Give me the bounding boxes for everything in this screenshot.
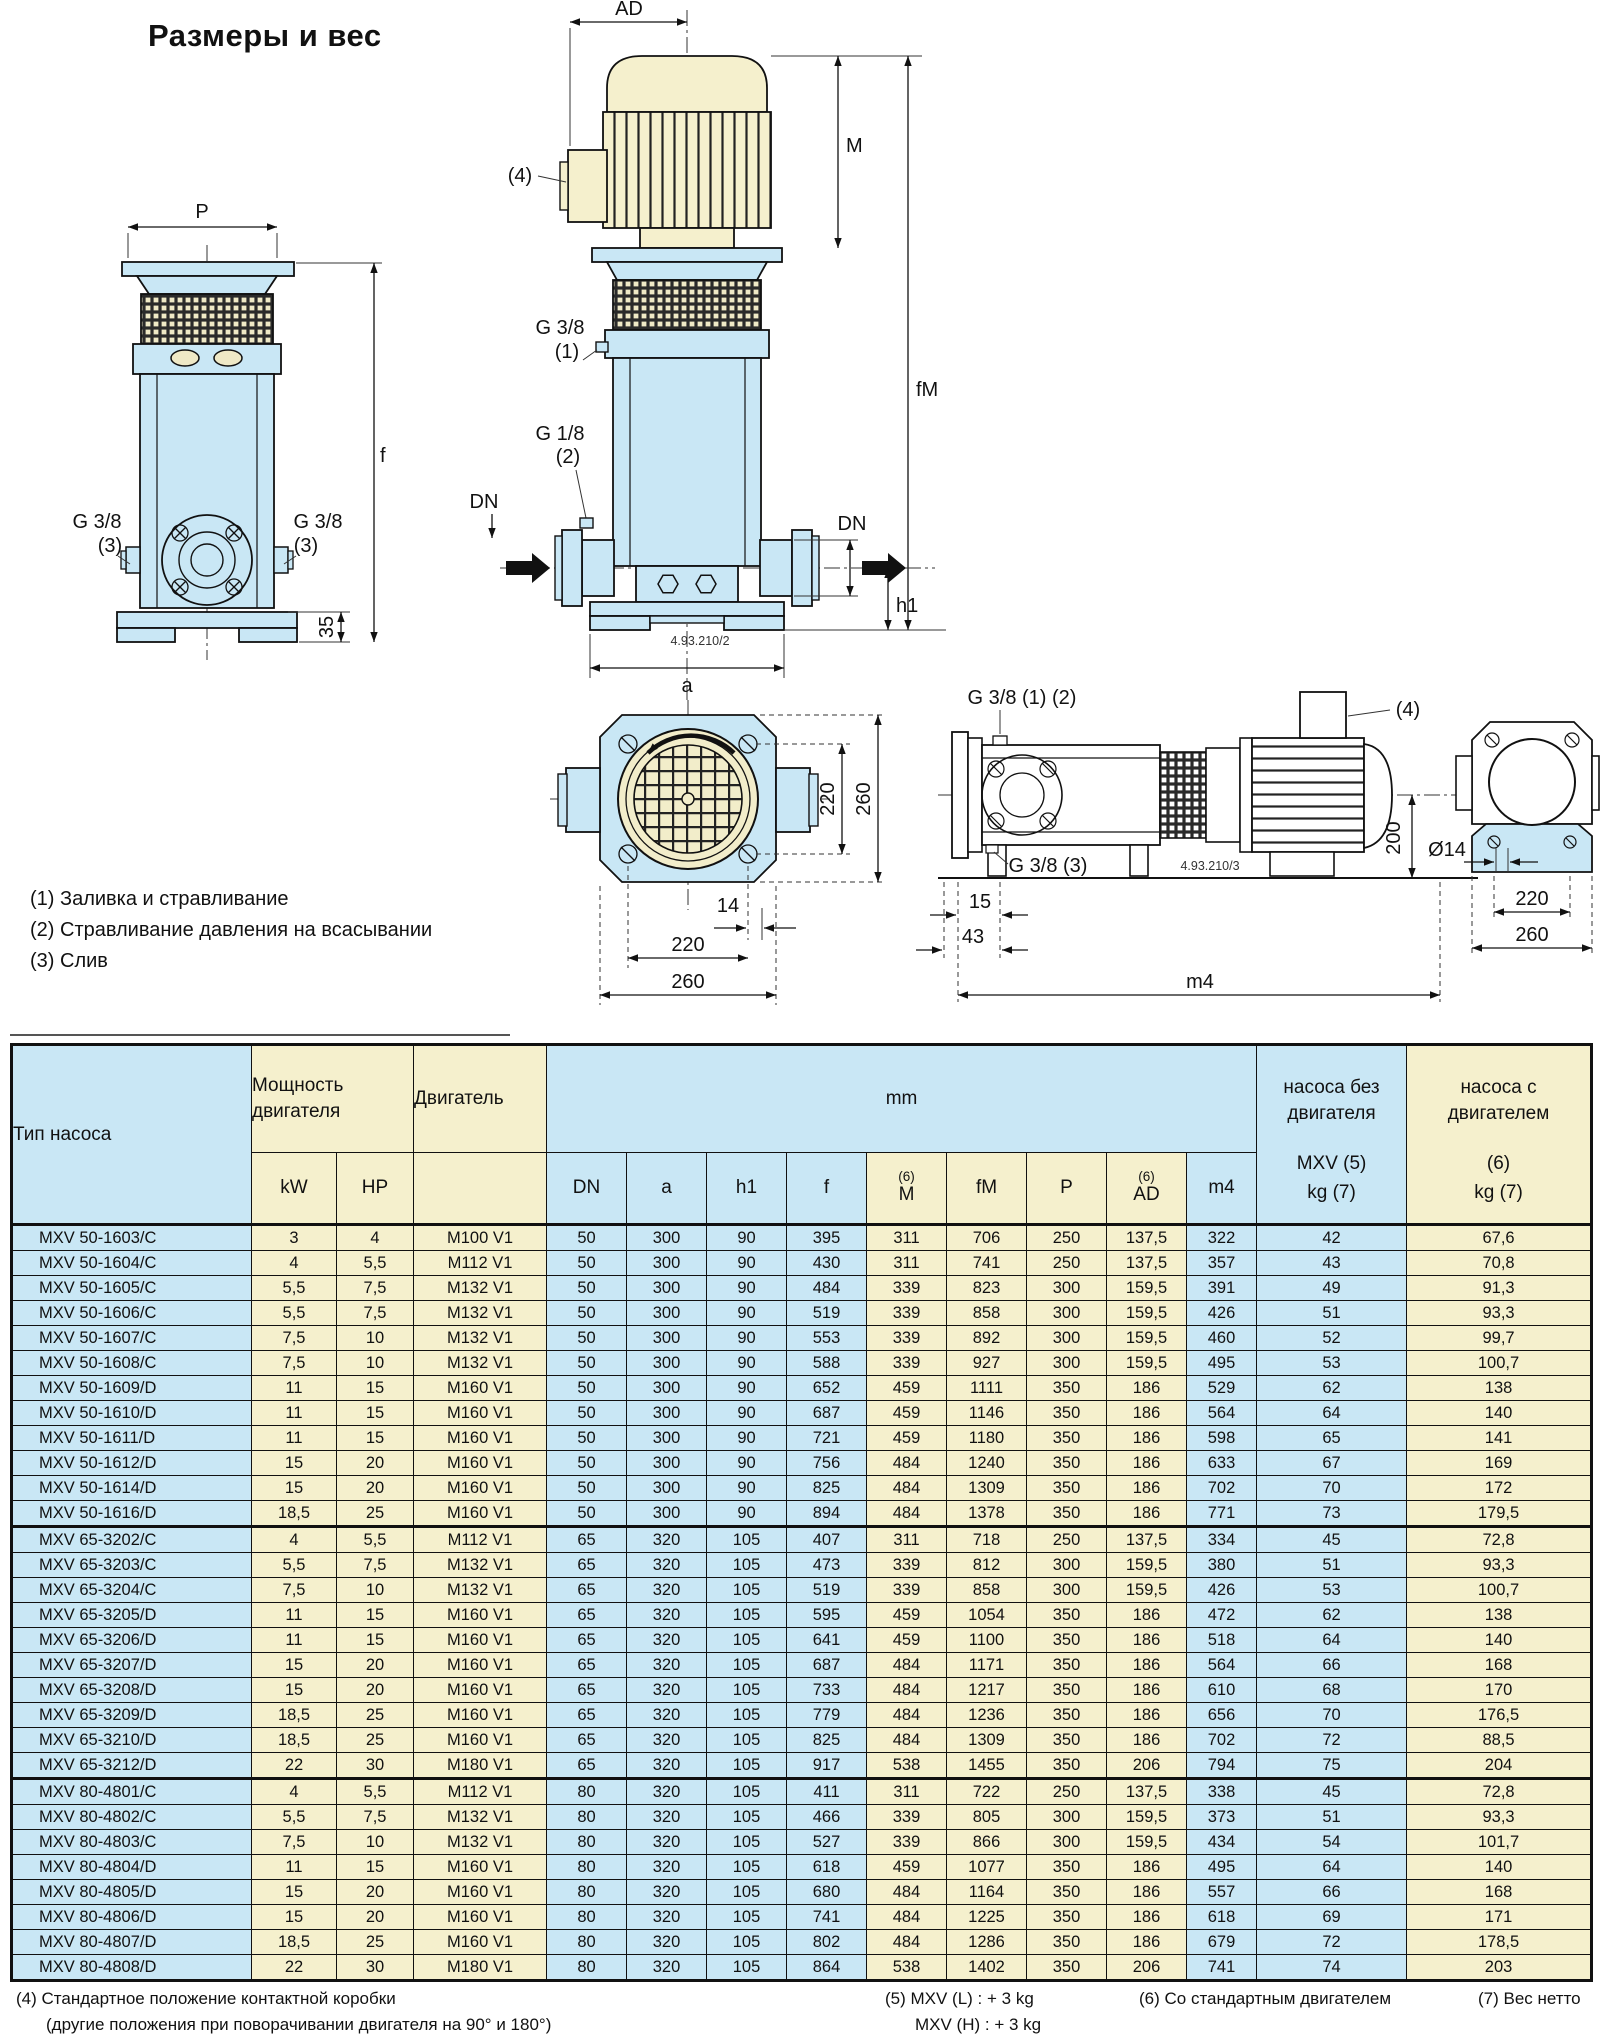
value-cell: 484 bbox=[867, 1728, 947, 1753]
value-cell: 20 bbox=[337, 1476, 414, 1501]
col-header-weight-bare: насоса бездвигателя MXV (5) kg (7) bbox=[1257, 1045, 1407, 1225]
value-cell: 10 bbox=[337, 1351, 414, 1376]
value-cell: 311 bbox=[867, 1225, 947, 1251]
table-row: MXV 65-3209/D18,525M160 V165320105779484… bbox=[12, 1703, 1592, 1728]
value-cell: 484 bbox=[867, 1703, 947, 1728]
value-cell: 7,5 bbox=[337, 1301, 414, 1326]
value-cell: 350 bbox=[1027, 1703, 1107, 1728]
value-cell: 52 bbox=[1257, 1326, 1407, 1351]
value-cell: 105 bbox=[707, 1930, 787, 1955]
table-row: MXV 65-3212/D2230M180 V16532010591753814… bbox=[12, 1753, 1592, 1779]
value-cell: 300 bbox=[1027, 1326, 1107, 1351]
value-cell: 466 bbox=[787, 1805, 867, 1830]
value-cell: 159,5 bbox=[1107, 1578, 1187, 1603]
value-cell: 90 bbox=[707, 1476, 787, 1501]
dim-label-260-end: 260 bbox=[1515, 924, 1548, 946]
col-header-a: a bbox=[627, 1153, 707, 1225]
pump-type-cell: MXV 80-4803/C bbox=[12, 1830, 252, 1855]
value-cell: 1240 bbox=[947, 1451, 1027, 1476]
value-cell: 204 bbox=[1407, 1753, 1592, 1779]
table-row: MXV 50-1611/D1115M160 V15030090721459118… bbox=[12, 1426, 1592, 1451]
col-header-p: P bbox=[1027, 1153, 1107, 1225]
table-row: MXV 65-3208/D1520M160 V16532010573348412… bbox=[12, 1678, 1592, 1703]
value-cell: 459 bbox=[867, 1426, 947, 1451]
value-cell: 300 bbox=[1027, 1830, 1107, 1855]
col-header-hp: HP bbox=[337, 1153, 414, 1225]
value-cell: 320 bbox=[627, 1603, 707, 1628]
value-cell: M160 V1 bbox=[414, 1628, 547, 1653]
value-cell: 300 bbox=[627, 1225, 707, 1251]
value-cell: 45 bbox=[1257, 1779, 1407, 1805]
value-cell: 320 bbox=[627, 1779, 707, 1805]
table-row: MXV 80-4806/D1520M160 V18032010574148412… bbox=[12, 1905, 1592, 1930]
value-cell: M180 V1 bbox=[414, 1753, 547, 1779]
value-cell: 15 bbox=[337, 1401, 414, 1426]
value-cell: 50 bbox=[547, 1225, 627, 1251]
value-cell: 595 bbox=[787, 1603, 867, 1628]
value-cell: 15 bbox=[252, 1653, 337, 1678]
table-row: MXV 80-4804/D1115M160 V18032010561845910… bbox=[12, 1855, 1592, 1880]
pump-type-cell: MXV 65-3206/D bbox=[12, 1628, 252, 1653]
value-cell: 320 bbox=[627, 1955, 707, 1981]
pump-type-cell: MXV 65-3212/D bbox=[12, 1753, 252, 1779]
value-cell: 598 bbox=[1187, 1426, 1257, 1451]
value-cell: M160 V1 bbox=[414, 1376, 547, 1401]
section-divider bbox=[10, 1034, 510, 1036]
value-cell: 350 bbox=[1027, 1401, 1107, 1426]
value-cell: 1309 bbox=[947, 1476, 1027, 1501]
value-cell: 1236 bbox=[947, 1703, 1027, 1728]
value-cell: 5,5 bbox=[252, 1805, 337, 1830]
value-cell: 519 bbox=[787, 1301, 867, 1326]
value-cell: 680 bbox=[787, 1880, 867, 1905]
value-cell: 20 bbox=[337, 1880, 414, 1905]
value-cell: 339 bbox=[867, 1301, 947, 1326]
value-cell: 54 bbox=[1257, 1830, 1407, 1855]
value-cell: 72 bbox=[1257, 1728, 1407, 1753]
footnote-5: (5) MXV (L) : + 3 kg MXV (H) : + 3 kg bbox=[885, 1986, 1041, 2037]
value-cell: 250 bbox=[1027, 1251, 1107, 1276]
value-cell: 7,5 bbox=[252, 1830, 337, 1855]
value-cell: 320 bbox=[627, 1805, 707, 1830]
dim-label-dia14: Ø14 bbox=[1428, 839, 1466, 861]
pump-type-cell: MXV 80-4807/D bbox=[12, 1930, 252, 1955]
value-cell: 7,5 bbox=[252, 1326, 337, 1351]
value-cell: 80 bbox=[547, 1805, 627, 1830]
value-cell: 101,7 bbox=[1407, 1830, 1592, 1855]
value-cell: 90 bbox=[707, 1225, 787, 1251]
value-cell: 687 bbox=[787, 1401, 867, 1426]
value-cell: 50 bbox=[547, 1301, 627, 1326]
value-cell: 250 bbox=[1027, 1527, 1107, 1553]
value-cell: 169 bbox=[1407, 1451, 1592, 1476]
value-cell: M132 V1 bbox=[414, 1830, 547, 1855]
value-cell: 15 bbox=[337, 1426, 414, 1451]
value-cell: 527 bbox=[787, 1830, 867, 1855]
col-header-mm: mm bbox=[547, 1045, 1257, 1153]
dim-label-14: 14 bbox=[717, 895, 739, 917]
port-label-g38-12: G 3/8 (1) (2) bbox=[968, 687, 1077, 709]
value-cell: 11 bbox=[252, 1426, 337, 1451]
value-cell: 25 bbox=[337, 1930, 414, 1955]
value-cell: 50 bbox=[547, 1376, 627, 1401]
value-cell: 105 bbox=[707, 1805, 787, 1830]
value-cell: 538 bbox=[867, 1955, 947, 1981]
value-cell: 350 bbox=[1027, 1426, 1107, 1451]
value-cell: 10 bbox=[337, 1830, 414, 1855]
value-cell: M132 V1 bbox=[414, 1805, 547, 1830]
value-cell: 1077 bbox=[947, 1855, 1027, 1880]
value-cell: 459 bbox=[867, 1628, 947, 1653]
pump-type-label: Тип насоса bbox=[13, 1124, 111, 1145]
port-label-g38-left: G 3/8 bbox=[73, 511, 122, 533]
value-cell: 311 bbox=[867, 1527, 947, 1553]
value-cell: 53 bbox=[1257, 1578, 1407, 1603]
value-cell: 65 bbox=[547, 1728, 627, 1753]
value-cell: 459 bbox=[867, 1376, 947, 1401]
value-cell: 805 bbox=[947, 1805, 1027, 1830]
value-cell: 50 bbox=[547, 1251, 627, 1276]
value-cell: M160 V1 bbox=[414, 1678, 547, 1703]
pump-type-cell: MXV 65-3202/C bbox=[12, 1527, 252, 1553]
value-cell: 105 bbox=[707, 1578, 787, 1603]
pump-type-cell: MXV 50-1608/C bbox=[12, 1351, 252, 1376]
table-row: MXV 65-3210/D18,525M160 V165320105825484… bbox=[12, 1728, 1592, 1753]
value-cell: 105 bbox=[707, 1678, 787, 1703]
value-cell: 51 bbox=[1257, 1301, 1407, 1326]
value-cell: 186 bbox=[1107, 1401, 1187, 1426]
value-cell: 18,5 bbox=[252, 1930, 337, 1955]
value-cell: 64 bbox=[1257, 1855, 1407, 1880]
value-cell: M132 V1 bbox=[414, 1276, 547, 1301]
value-cell: 339 bbox=[867, 1326, 947, 1351]
value-cell: 300 bbox=[627, 1451, 707, 1476]
value-cell: 70 bbox=[1257, 1476, 1407, 1501]
value-cell: 186 bbox=[1107, 1728, 1187, 1753]
value-cell: 159,5 bbox=[1107, 1351, 1187, 1376]
value-cell: 80 bbox=[547, 1905, 627, 1930]
value-cell: 172 bbox=[1407, 1476, 1592, 1501]
value-cell: 411 bbox=[787, 1779, 867, 1805]
value-cell: M160 V1 bbox=[414, 1855, 547, 1880]
value-cell: 186 bbox=[1107, 1501, 1187, 1527]
value-cell: 484 bbox=[867, 1501, 947, 1527]
table-row: MXV 50-1614/D1520M160 V15030090825484130… bbox=[12, 1476, 1592, 1501]
value-cell: 11 bbox=[252, 1855, 337, 1880]
col-header-pump-type: Тип насоса bbox=[12, 1045, 252, 1225]
value-cell: 484 bbox=[867, 1653, 947, 1678]
table-row: MXV 50-1607/C7,510M132 V1503009055333989… bbox=[12, 1326, 1592, 1351]
value-cell: 50 bbox=[547, 1476, 627, 1501]
value-cell: 88,5 bbox=[1407, 1728, 1592, 1753]
dim-label-f: f bbox=[380, 445, 386, 467]
pump-type-cell: MXV 65-3210/D bbox=[12, 1728, 252, 1753]
value-cell: 350 bbox=[1027, 1653, 1107, 1678]
col-header-ad: (6)AD bbox=[1107, 1153, 1187, 1225]
value-cell: 25 bbox=[337, 1728, 414, 1753]
value-cell: 339 bbox=[867, 1830, 947, 1855]
value-cell: 300 bbox=[1027, 1805, 1107, 1830]
table-row: MXV 65-3204/C7,510M132 V1653201055193398… bbox=[12, 1578, 1592, 1603]
drawing-top-view: 220 260 14 220 260 bbox=[550, 700, 886, 1005]
table-row: MXV 65-3203/C5,57,5M132 V165320105473339… bbox=[12, 1553, 1592, 1578]
value-cell: 65 bbox=[547, 1578, 627, 1603]
value-cell: M160 V1 bbox=[414, 1501, 547, 1527]
value-cell: 99,7 bbox=[1407, 1326, 1592, 1351]
table-row: MXV 65-3205/D1115M160 V16532010559545910… bbox=[12, 1603, 1592, 1628]
value-cell: 65 bbox=[547, 1703, 627, 1728]
value-cell: 90 bbox=[707, 1451, 787, 1476]
value-cell: 300 bbox=[627, 1351, 707, 1376]
value-cell: 159,5 bbox=[1107, 1301, 1187, 1326]
value-cell: 64 bbox=[1257, 1628, 1407, 1653]
col-header-m: (6)M bbox=[867, 1153, 947, 1225]
value-cell: 80 bbox=[547, 1830, 627, 1855]
value-cell: 105 bbox=[707, 1653, 787, 1678]
value-cell: 50 bbox=[547, 1276, 627, 1301]
value-cell: 105 bbox=[707, 1753, 787, 1779]
value-cell: 137,5 bbox=[1107, 1251, 1187, 1276]
value-cell: 300 bbox=[1027, 1578, 1107, 1603]
value-cell: 320 bbox=[627, 1527, 707, 1553]
value-cell: 5,5 bbox=[252, 1553, 337, 1578]
value-cell: 706 bbox=[947, 1225, 1027, 1251]
value-cell: 186 bbox=[1107, 1628, 1187, 1653]
value-cell: M160 V1 bbox=[414, 1451, 547, 1476]
dim-label-p: P bbox=[195, 201, 208, 223]
value-cell: 618 bbox=[787, 1855, 867, 1880]
value-cell: M132 V1 bbox=[414, 1553, 547, 1578]
value-cell: 656 bbox=[1187, 1703, 1257, 1728]
value-cell: 171 bbox=[1407, 1905, 1592, 1930]
value-cell: 320 bbox=[627, 1855, 707, 1880]
value-cell: 65 bbox=[547, 1527, 627, 1553]
value-cell: 105 bbox=[707, 1880, 787, 1905]
value-cell: 350 bbox=[1027, 1880, 1107, 1905]
value-cell: 4 bbox=[252, 1251, 337, 1276]
value-cell: 300 bbox=[627, 1301, 707, 1326]
value-cell: 105 bbox=[707, 1905, 787, 1930]
value-cell: 311 bbox=[867, 1779, 947, 1805]
value-cell: 186 bbox=[1107, 1376, 1187, 1401]
value-cell: 105 bbox=[707, 1703, 787, 1728]
col-header-f: f bbox=[787, 1153, 867, 1225]
table-row: MXV 50-1616/D18,525M160 V150300908944841… bbox=[12, 1501, 1592, 1527]
value-cell: 320 bbox=[627, 1578, 707, 1603]
value-cell: 679 bbox=[1187, 1930, 1257, 1955]
value-cell: 373 bbox=[1187, 1805, 1257, 1830]
value-cell: M112 V1 bbox=[414, 1251, 547, 1276]
table-group-mxv80: MXV 80-4801/C45,5M112 V18032010541131172… bbox=[12, 1779, 1592, 1981]
value-cell: 105 bbox=[707, 1779, 787, 1805]
table-row: MXV 80-4802/C5,57,5M132 V180320105466339… bbox=[12, 1805, 1592, 1830]
value-cell: 5,5 bbox=[252, 1301, 337, 1326]
value-cell: 11 bbox=[252, 1376, 337, 1401]
value-cell: 186 bbox=[1107, 1880, 1187, 1905]
value-cell: 170 bbox=[1407, 1678, 1592, 1703]
value-cell: 1225 bbox=[947, 1905, 1027, 1930]
dim-label-35: 35 bbox=[316, 616, 338, 638]
dim-label-260-vert: 260 bbox=[853, 782, 875, 815]
table-row: MXV 50-1609/D1115M160 V15030090652459111… bbox=[12, 1376, 1592, 1401]
value-cell: 80 bbox=[547, 1779, 627, 1805]
port-label-g38-3: G 3/8 (3) bbox=[1009, 855, 1088, 877]
value-cell: 5,5 bbox=[337, 1527, 414, 1553]
value-cell: 74 bbox=[1257, 1955, 1407, 1981]
value-cell: 320 bbox=[627, 1930, 707, 1955]
value-cell: 300 bbox=[627, 1326, 707, 1351]
value-cell: 518 bbox=[1187, 1628, 1257, 1653]
value-cell: 186 bbox=[1107, 1930, 1187, 1955]
table-row: MXV 50-1612/D1520M160 V15030090756484124… bbox=[12, 1451, 1592, 1476]
value-cell: 18,5 bbox=[252, 1728, 337, 1753]
value-cell: 65 bbox=[547, 1653, 627, 1678]
table-row: MXV 50-1604/C45,5M112 V15030090430311741… bbox=[12, 1251, 1592, 1276]
value-cell: 350 bbox=[1027, 1451, 1107, 1476]
value-cell: 618 bbox=[1187, 1905, 1257, 1930]
value-cell: 350 bbox=[1027, 1501, 1107, 1527]
dim-label-260-horiz: 260 bbox=[671, 971, 704, 993]
value-cell: 1171 bbox=[947, 1653, 1027, 1678]
value-cell: 741 bbox=[787, 1905, 867, 1930]
value-cell: 62 bbox=[1257, 1376, 1407, 1401]
value-cell: 687 bbox=[787, 1653, 867, 1678]
value-cell: 1378 bbox=[947, 1501, 1027, 1527]
value-cell: 300 bbox=[627, 1476, 707, 1501]
value-cell: 179,5 bbox=[1407, 1501, 1592, 1527]
value-cell: 65 bbox=[547, 1678, 627, 1703]
value-cell: 350 bbox=[1027, 1855, 1107, 1880]
value-cell: 25 bbox=[337, 1703, 414, 1728]
dim-label-a: a bbox=[681, 675, 693, 697]
table-row: MXV 80-4805/D1520M160 V18032010568048411… bbox=[12, 1880, 1592, 1905]
value-cell: M132 V1 bbox=[414, 1578, 547, 1603]
value-cell: 90 bbox=[707, 1426, 787, 1451]
legend: (1) Заливка и стравливание (2) Стравлива… bbox=[30, 884, 432, 977]
value-cell: 350 bbox=[1027, 1476, 1107, 1501]
value-cell: 4 bbox=[252, 1527, 337, 1553]
dim-label-220-end: 220 bbox=[1515, 888, 1548, 910]
value-cell: 186 bbox=[1107, 1476, 1187, 1501]
value-cell: 320 bbox=[627, 1703, 707, 1728]
value-cell: 484 bbox=[867, 1451, 947, 1476]
value-cell: 50 bbox=[547, 1501, 627, 1527]
port-label-3-left: (3) bbox=[98, 535, 122, 557]
value-cell: 64 bbox=[1257, 1401, 1407, 1426]
pump-type-cell: MXV 50-1616/D bbox=[12, 1501, 252, 1527]
dim-label-ad: AD bbox=[615, 0, 643, 20]
value-cell: 51 bbox=[1257, 1805, 1407, 1830]
value-cell: 80 bbox=[547, 1955, 627, 1981]
value-cell: 15 bbox=[252, 1476, 337, 1501]
value-cell: 722 bbox=[947, 1779, 1027, 1805]
pump-type-cell: MXV 50-1614/D bbox=[12, 1476, 252, 1501]
value-cell: 484 bbox=[867, 1476, 947, 1501]
value-cell: 320 bbox=[627, 1905, 707, 1930]
value-cell: 3 bbox=[252, 1225, 337, 1251]
value-cell: 484 bbox=[787, 1276, 867, 1301]
table-row: MXV 80-4807/D18,525M160 V180320105802484… bbox=[12, 1930, 1592, 1955]
value-cell: 1100 bbox=[947, 1628, 1027, 1653]
value-cell: 391 bbox=[1187, 1276, 1257, 1301]
value-cell: 42 bbox=[1257, 1225, 1407, 1251]
dim-label-220-horiz: 220 bbox=[671, 934, 704, 956]
value-cell: 15 bbox=[252, 1678, 337, 1703]
value-cell: 917 bbox=[787, 1753, 867, 1779]
value-cell: 65 bbox=[547, 1753, 627, 1779]
value-cell: 67,6 bbox=[1407, 1225, 1592, 1251]
col-header-fm: fM bbox=[947, 1153, 1027, 1225]
value-cell: 186 bbox=[1107, 1603, 1187, 1628]
port-label-g18: G 1/8 bbox=[536, 423, 585, 445]
value-cell: 138 bbox=[1407, 1603, 1592, 1628]
value-cell: 137,5 bbox=[1107, 1225, 1187, 1251]
value-cell: 484 bbox=[867, 1880, 947, 1905]
value-cell: 105 bbox=[707, 1527, 787, 1553]
value-cell: 472 bbox=[1187, 1603, 1257, 1628]
value-cell: 73 bbox=[1257, 1501, 1407, 1527]
value-cell: 11 bbox=[252, 1401, 337, 1426]
value-cell: 30 bbox=[337, 1753, 414, 1779]
value-cell: 90 bbox=[707, 1501, 787, 1527]
pump-type-cell: MXV 50-1605/C bbox=[12, 1276, 252, 1301]
value-cell: 65 bbox=[547, 1553, 627, 1578]
pump-type-cell: MXV 65-3207/D bbox=[12, 1653, 252, 1678]
dim-label-43: 43 bbox=[962, 926, 984, 948]
dimensions-table: Тип насоса Мощность двигателя Двигатель … bbox=[10, 1043, 1593, 1982]
value-cell: 426 bbox=[1187, 1578, 1257, 1603]
value-cell: 20 bbox=[337, 1451, 414, 1476]
dim-label-15: 15 bbox=[969, 891, 991, 913]
value-cell: 300 bbox=[627, 1426, 707, 1451]
footnote-4: (4) Стандартное положение контактной кор… bbox=[16, 1986, 551, 2037]
value-cell: 320 bbox=[627, 1880, 707, 1905]
pump-type-cell: MXV 80-4804/D bbox=[12, 1855, 252, 1880]
col-header-dn: DN bbox=[547, 1153, 627, 1225]
value-cell: M160 V1 bbox=[414, 1930, 547, 1955]
value-cell: 15 bbox=[337, 1376, 414, 1401]
value-cell: 864 bbox=[787, 1955, 867, 1981]
value-cell: 350 bbox=[1027, 1955, 1107, 1981]
value-cell: 894 bbox=[787, 1501, 867, 1527]
value-cell: 159,5 bbox=[1107, 1830, 1187, 1855]
pump-type-cell: MXV 50-1606/C bbox=[12, 1301, 252, 1326]
value-cell: 339 bbox=[867, 1276, 947, 1301]
value-cell: 300 bbox=[1027, 1351, 1107, 1376]
value-cell: 206 bbox=[1107, 1955, 1187, 1981]
table-row: MXV 65-3207/D1520M160 V16532010568748411… bbox=[12, 1653, 1592, 1678]
value-cell: 90 bbox=[707, 1351, 787, 1376]
value-cell: 159,5 bbox=[1107, 1553, 1187, 1578]
value-cell: 168 bbox=[1407, 1653, 1592, 1678]
value-cell: 7,5 bbox=[337, 1553, 414, 1578]
value-cell: 72,8 bbox=[1407, 1527, 1592, 1553]
value-cell: 484 bbox=[867, 1905, 947, 1930]
value-cell: 1111 bbox=[947, 1376, 1027, 1401]
value-cell: 105 bbox=[707, 1628, 787, 1653]
table-row: MXV 50-1608/C7,510M132 V1503009058833992… bbox=[12, 1351, 1592, 1376]
value-cell: 7,5 bbox=[252, 1351, 337, 1376]
value-cell: 66 bbox=[1257, 1880, 1407, 1905]
dim-label-m: M bbox=[846, 135, 863, 157]
col-header-power: Мощность двигателя bbox=[252, 1045, 414, 1153]
value-cell: 65 bbox=[547, 1628, 627, 1653]
value-cell: 11 bbox=[252, 1628, 337, 1653]
value-cell: 90 bbox=[707, 1326, 787, 1351]
value-cell: 15 bbox=[252, 1905, 337, 1930]
value-cell: 91,3 bbox=[1407, 1276, 1592, 1301]
value-cell: 350 bbox=[1027, 1376, 1107, 1401]
